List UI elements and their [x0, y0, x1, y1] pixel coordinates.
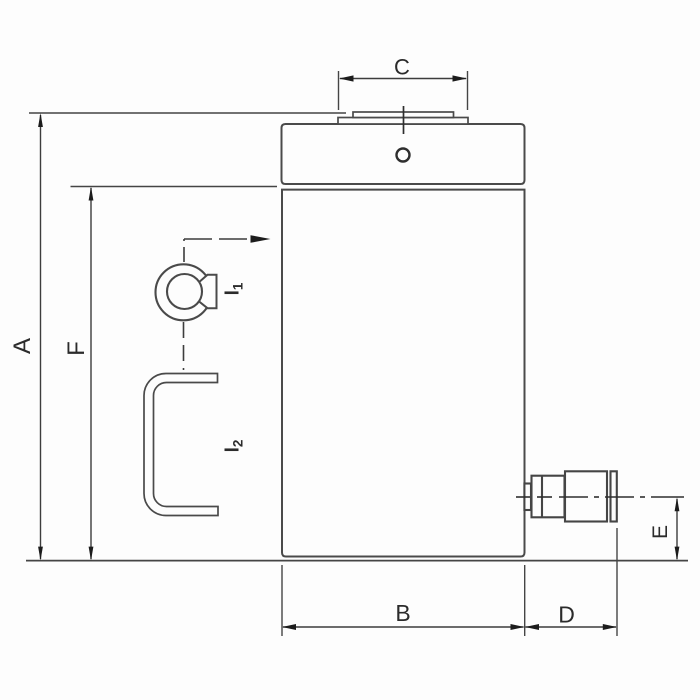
svg-text:F: F: [63, 341, 90, 356]
svg-text:B: B: [395, 600, 410, 626]
svg-text:A: A: [9, 338, 36, 354]
svg-text:C: C: [394, 55, 410, 80]
svg-text:D: D: [558, 602, 575, 628]
svg-text:E: E: [649, 525, 672, 539]
